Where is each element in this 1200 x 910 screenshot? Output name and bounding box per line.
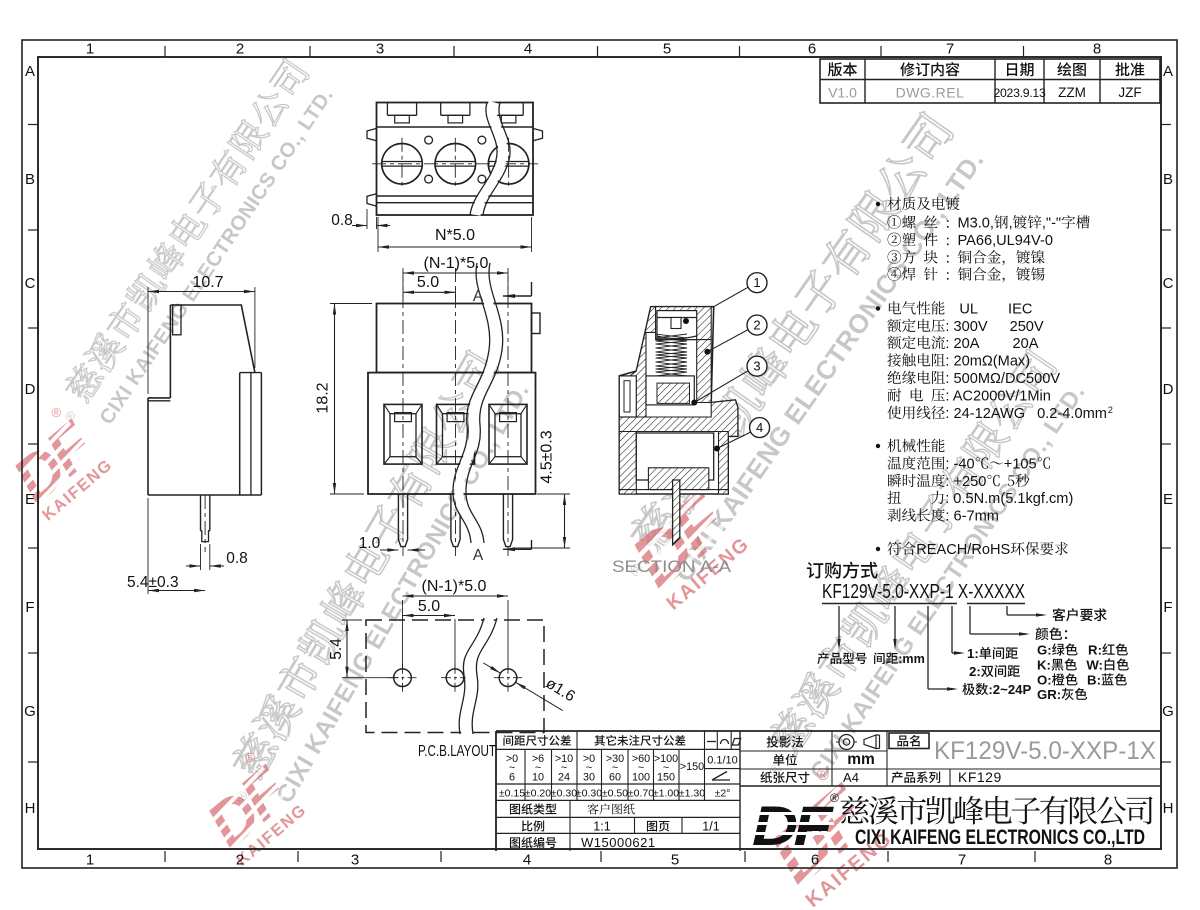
svg-text:,"-": ,"-" — [1042, 216, 1061, 232]
svg-text:>150: >150 — [680, 761, 704, 773]
svg-text::2~24P: :2~24P — [988, 682, 1031, 697]
svg-text:8: 8 — [1104, 852, 1112, 869]
svg-text:G: G — [24, 703, 36, 720]
svg-text:: 6-7mm: : 6-7mm — [945, 509, 999, 525]
svg-text:10: 10 — [532, 772, 544, 784]
svg-text:100: 100 — [632, 772, 650, 784]
svg-text:G:: G: — [1037, 643, 1052, 658]
svg-text:D: D — [25, 381, 36, 398]
svg-text:K:: K: — [1037, 658, 1051, 673]
svg-text:B: B — [25, 171, 35, 188]
svg-text:5.0: 5.0 — [417, 274, 439, 291]
svg-text:8: 8 — [1093, 41, 1101, 58]
svg-text:C: C — [25, 275, 36, 292]
svg-text::mm: :mm — [898, 652, 925, 666]
svg-text:D: D — [1163, 381, 1174, 398]
svg-text:KF129V-5.0-XXP-1X: KF129V-5.0-XXP-1X — [934, 737, 1156, 765]
svg-text:5: 5 — [663, 41, 671, 58]
svg-text:6: 6 — [509, 772, 515, 784]
svg-text:A: A — [473, 288, 484, 305]
svg-text:UL: UL — [959, 302, 978, 318]
svg-text:A: A — [25, 63, 35, 80]
svg-text:+105: +105 — [1004, 457, 1037, 473]
svg-text:1: 1 — [86, 41, 94, 58]
svg-text:GR:: GR: — [1037, 687, 1061, 702]
svg-text:4: 4 — [524, 41, 532, 58]
svg-text:B:: B: — [1087, 673, 1101, 688]
svg-text:A4: A4 — [843, 770, 859, 785]
svg-text:1.0: 1.0 — [359, 535, 381, 552]
svg-text:CIXI KAIFENG ELECTRONICS CO.,L: CIXI KAIFENG ELECTRONICS CO.,LTD — [855, 826, 1145, 849]
svg-text:±0.20: ±0.20 — [525, 788, 551, 800]
svg-text:F: F — [25, 599, 34, 616]
svg-text:: 0.5N.m(5.1kgf.cm): : 0.5N.m(5.1kgf.cm) — [945, 491, 1073, 507]
svg-text:20A: 20A — [1012, 336, 1038, 352]
svg-text:H: H — [25, 800, 36, 817]
svg-text:E: E — [1163, 491, 1173, 508]
svg-text:: 20m: : 20m — [945, 354, 982, 370]
svg-text:±1.00: ±1.00 — [653, 788, 679, 800]
svg-text:A: A — [1163, 63, 1173, 80]
svg-text:DF: DF — [752, 794, 835, 857]
svg-text:5.4±0.3: 5.4±0.3 — [127, 574, 179, 591]
svg-text:DWG.REL: DWG.REL — [896, 85, 965, 101]
svg-text:B: B — [1163, 171, 1173, 188]
svg-text:Ω: Ω — [982, 354, 993, 370]
svg-text:±0.50: ±0.50 — [602, 788, 628, 800]
svg-text:G: G — [1162, 703, 1174, 720]
svg-text:H: H — [1163, 800, 1174, 817]
svg-text:6: 6 — [808, 41, 816, 58]
svg-text:2023.9.13: 2023.9.13 — [993, 86, 1045, 100]
svg-text:/DC500V: /DC500V — [1001, 371, 1060, 387]
svg-text:5: 5 — [671, 852, 679, 869]
svg-text:: -40: : -40 — [945, 457, 974, 473]
svg-text:F: F — [1163, 599, 1172, 616]
svg-text:: 20A: : 20A — [945, 336, 979, 352]
svg-text:REACH/RoHS: REACH/RoHS — [916, 542, 1010, 558]
svg-text:W:: W: — [1086, 658, 1103, 673]
svg-text:1/1: 1/1 — [702, 820, 719, 834]
svg-text:2:: 2: — [969, 664, 981, 679]
svg-text:4: 4 — [756, 420, 763, 435]
svg-text:N*5.0: N*5.0 — [435, 227, 475, 244]
svg-text:W15000621: W15000621 — [581, 835, 656, 850]
svg-text:: AC2000V/1Min: : AC2000V/1Min — [945, 389, 1050, 405]
svg-text:3: 3 — [351, 852, 359, 869]
svg-text:0.1/10: 0.1/10 — [707, 755, 738, 767]
svg-text:2: 2 — [1108, 405, 1113, 415]
svg-text:PA66,UL94V-0: PA66,UL94V-0 — [957, 233, 1052, 249]
svg-text:SECTION A-A: SECTION A-A — [612, 557, 732, 576]
svg-text:2: 2 — [236, 852, 244, 869]
svg-text:: 500M: : 500M — [945, 371, 990, 387]
svg-text:R:: R: — [1088, 643, 1102, 658]
svg-text:0.2-4.0mm: 0.2-4.0mm — [1037, 406, 1107, 422]
svg-text:O:: O: — [1037, 673, 1052, 688]
svg-text:7: 7 — [946, 41, 954, 58]
svg-text:1: 1 — [753, 275, 760, 290]
svg-text:,: , — [1009, 216, 1013, 232]
svg-text:M3.0,: M3.0, — [957, 216, 994, 232]
svg-text:3: 3 — [753, 359, 760, 374]
svg-text:: +250: : +250 — [945, 474, 986, 490]
svg-text:±0.15: ±0.15 — [499, 788, 525, 800]
svg-text:(N-1)*5.0: (N-1)*5.0 — [424, 255, 489, 272]
svg-text:7: 7 — [958, 852, 966, 869]
svg-text:0.8: 0.8 — [226, 550, 248, 567]
svg-text:1:: 1: — [967, 646, 979, 661]
svg-text:1: 1 — [86, 852, 94, 869]
svg-text:5.4: 5.4 — [328, 638, 345, 660]
svg-text:10.7: 10.7 — [192, 274, 223, 291]
svg-text:mm: mm — [847, 751, 875, 768]
svg-text:IEC: IEC — [1008, 302, 1032, 318]
svg-text:2: 2 — [236, 41, 244, 58]
svg-text:±2°: ±2° — [715, 788, 731, 800]
svg-text:E: E — [25, 491, 35, 508]
svg-text:C: C — [1163, 275, 1174, 292]
svg-text:18.2: 18.2 — [315, 382, 332, 413]
svg-text:3: 3 — [376, 41, 384, 58]
svg-text:±0.70: ±0.70 — [628, 788, 654, 800]
svg-text:60: 60 — [609, 772, 621, 784]
svg-text:: 300V: : 300V — [945, 319, 987, 335]
svg-text:ZZM: ZZM — [1058, 85, 1086, 100]
svg-text:JZF: JZF — [1118, 85, 1141, 100]
svg-text:150: 150 — [657, 772, 675, 784]
svg-text:4: 4 — [523, 852, 531, 869]
svg-text:5.0: 5.0 — [418, 598, 440, 615]
svg-text:P.C.B.LAYOUT: P.C.B.LAYOUT — [418, 743, 496, 760]
svg-text:®: ® — [830, 791, 839, 805]
svg-text:: 24-12AWG: : 24-12AWG — [945, 406, 1025, 422]
svg-text:(Max): (Max) — [993, 354, 1030, 370]
svg-text:0.8: 0.8 — [331, 212, 353, 229]
svg-text:KF129: KF129 — [958, 769, 1002, 785]
svg-text:(N-1)*5.0: (N-1)*5.0 — [422, 578, 487, 595]
svg-text:A: A — [473, 547, 484, 564]
svg-text:±1.30: ±1.30 — [679, 788, 705, 800]
svg-text:2: 2 — [753, 318, 760, 333]
svg-text:4.5±0.3: 4.5±0.3 — [539, 430, 556, 483]
svg-text:Ω: Ω — [990, 371, 1001, 387]
svg-text:30: 30 — [583, 772, 595, 784]
svg-text:1:1: 1:1 — [593, 820, 610, 834]
svg-text:V1.0: V1.0 — [828, 85, 857, 101]
svg-text:±0.30: ±0.30 — [576, 788, 602, 800]
svg-text:250V: 250V — [1010, 319, 1044, 335]
svg-text:24: 24 — [558, 772, 570, 784]
svg-text:±0.30: ±0.30 — [551, 788, 577, 800]
svg-text:KF129V-5.0-XXP-1 X-XXXXX: KF129V-5.0-XXP-1 X-XXXXX — [822, 581, 1025, 603]
